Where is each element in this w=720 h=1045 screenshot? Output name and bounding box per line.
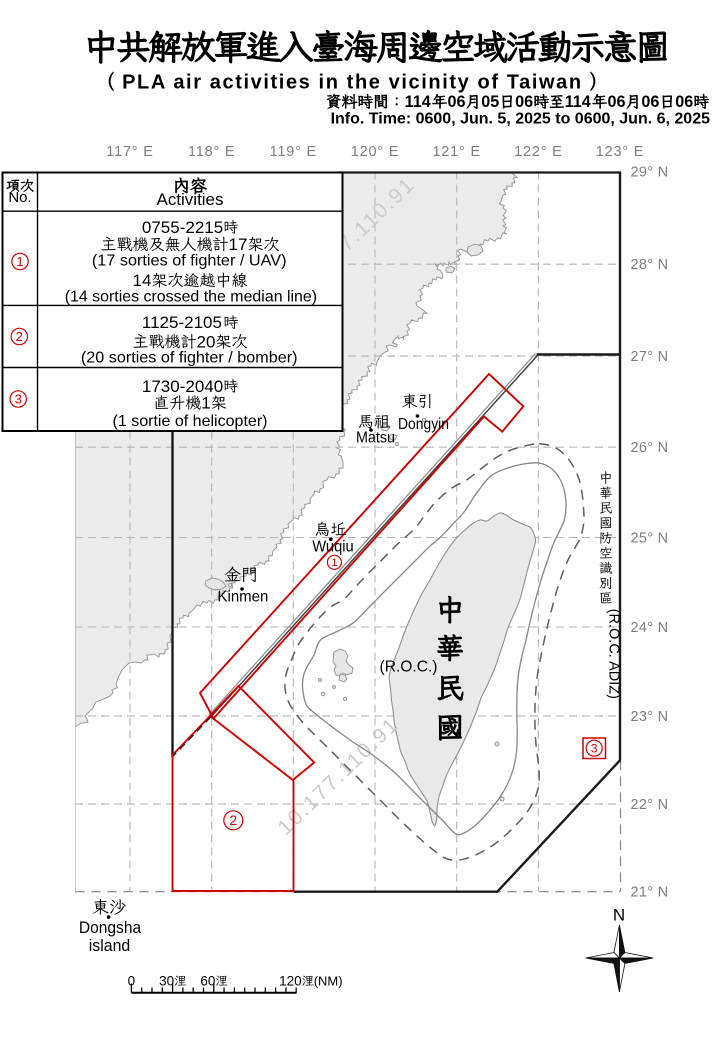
- svg-text:Dongsha: Dongsha: [79, 918, 142, 937]
- svg-text:14: 14: [133, 271, 152, 290]
- svg-text:No.: No.: [8, 189, 31, 206]
- svg-text:06: 06: [608, 93, 626, 111]
- svg-text:118° E: 118° E: [188, 144, 235, 160]
- svg-text:0755-2215: 0755-2215: [142, 218, 223, 237]
- svg-text:1: 1: [201, 394, 210, 413]
- svg-text:28° N: 28° N: [631, 257, 669, 273]
- svg-text:(14 sorties crossed the median: (14 sorties crossed the median line): [65, 288, 317, 305]
- svg-text:17: 17: [229, 235, 248, 254]
- svg-text:Info. Time: 0600, Jun. 5, 2025: Info. Time: 0600, Jun. 5, 2025 to 0600, …: [331, 111, 711, 128]
- svg-text:121° E: 121° E: [432, 144, 481, 160]
- svg-text:23° N: 23° N: [631, 709, 669, 725]
- svg-text:(R.O.C.): (R.O.C.): [380, 659, 438, 676]
- svg-text:123° E: 123° E: [596, 144, 645, 160]
- svg-text:60: 60: [200, 974, 215, 989]
- svg-text:120: 120: [279, 974, 302, 989]
- svg-text:20: 20: [197, 332, 216, 351]
- svg-text:117° E: 117° E: [106, 144, 153, 160]
- svg-text:2: 2: [229, 812, 237, 828]
- svg-text:Matsu: Matsu: [356, 430, 395, 447]
- svg-text:22° N: 22° N: [631, 797, 669, 813]
- svg-text:27° N: 27° N: [631, 349, 669, 365]
- svg-text:24° N: 24° N: [631, 620, 669, 636]
- svg-text:29° N: 29° N: [631, 165, 669, 181]
- svg-text:114: 114: [405, 93, 431, 111]
- svg-text:21° N: 21° N: [631, 885, 669, 901]
- svg-text:Dongyin: Dongyin: [398, 416, 449, 433]
- svg-text:26° N: 26° N: [631, 440, 669, 456]
- svg-text:N: N: [613, 906, 625, 925]
- svg-text:06: 06: [675, 93, 693, 111]
- svg-text:30: 30: [159, 974, 174, 989]
- svg-text:06: 06: [515, 93, 533, 111]
- svg-text:120° E: 120° E: [351, 144, 400, 160]
- svg-text:1: 1: [16, 254, 23, 269]
- svg-text:3: 3: [15, 391, 22, 406]
- svg-text:3: 3: [591, 741, 598, 755]
- svg-text:(20 sorties of fighter / bombe: (20 sorties of fighter / bomber): [81, 350, 298, 367]
- svg-text:05: 05: [481, 93, 499, 111]
- svg-text:Activities: Activities: [157, 191, 224, 209]
- svg-text:PLA air activities in the vici: PLA air activities in the vicinity of Ta…: [122, 72, 581, 94]
- svg-text:06: 06: [448, 93, 466, 111]
- svg-text:(R.O.C. ADIZ): (R.O.C. ADIZ): [606, 609, 622, 699]
- svg-text:(1 sortie of helicopter): (1 sortie of helicopter): [113, 413, 268, 430]
- svg-text:island: island: [89, 936, 131, 955]
- svg-text:0: 0: [128, 974, 136, 989]
- svg-text:119° E: 119° E: [270, 144, 317, 160]
- svg-text:1: 1: [331, 557, 337, 569]
- svg-text:Wuqiu: Wuqiu: [312, 539, 354, 556]
- svg-text:25° N: 25° N: [631, 531, 669, 547]
- svg-text:(17 sorties of fighter / UAV): (17 sorties of fighter / UAV): [92, 253, 287, 270]
- svg-text:06: 06: [641, 93, 659, 111]
- svg-text:114: 114: [565, 93, 591, 111]
- svg-text:Kinmen: Kinmen: [218, 589, 269, 606]
- svg-text:1125-2105: 1125-2105: [142, 313, 222, 332]
- svg-text:1730-2040: 1730-2040: [142, 377, 223, 396]
- svg-text:(NM): (NM): [314, 974, 343, 989]
- svg-text:122° E: 122° E: [514, 144, 563, 160]
- svg-text:2: 2: [16, 329, 23, 344]
